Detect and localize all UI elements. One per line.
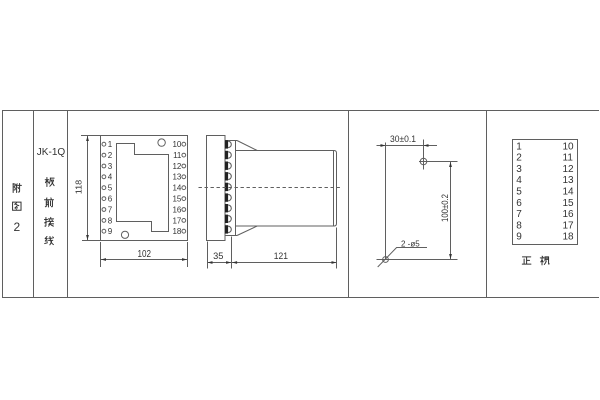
svg-text:18: 18 [172, 227, 181, 236]
svg-text:10: 10 [172, 140, 181, 149]
svg-text:18: 18 [563, 232, 575, 243]
svg-text:5: 5 [108, 184, 113, 193]
svg-text:15: 15 [172, 195, 181, 204]
svg-text:8: 8 [516, 220, 522, 231]
svg-text:121: 121 [274, 251, 288, 262]
svg-text:9: 9 [108, 227, 113, 236]
svg-text:8: 8 [108, 216, 113, 225]
svg-text:5: 5 [516, 187, 522, 198]
svg-text:1: 1 [108, 140, 113, 149]
svg-text:11: 11 [173, 151, 182, 160]
svg-text:4: 4 [516, 175, 522, 186]
svg-text:102: 102 [137, 249, 151, 260]
svg-text:6: 6 [516, 198, 522, 209]
svg-text:13: 13 [563, 175, 575, 186]
svg-text:JK-1Q: JK-1Q [37, 147, 66, 158]
svg-text:30±0.1: 30±0.1 [390, 134, 416, 145]
svg-text:2: 2 [108, 151, 113, 160]
svg-text:13: 13 [172, 173, 181, 182]
svg-text:7: 7 [516, 209, 522, 220]
svg-text:16: 16 [563, 209, 575, 220]
svg-text:12: 12 [563, 164, 575, 175]
svg-text:14: 14 [172, 184, 181, 193]
svg-text:11: 11 [563, 153, 574, 164]
svg-text:12: 12 [172, 162, 181, 171]
svg-text:4: 4 [108, 173, 113, 182]
svg-text:3: 3 [516, 164, 522, 175]
svg-text:7: 7 [108, 205, 113, 214]
svg-text:16: 16 [172, 205, 181, 214]
svg-text:6: 6 [108, 195, 113, 204]
svg-text:2: 2 [516, 153, 522, 164]
svg-text:1: 1 [516, 141, 522, 152]
svg-text:9: 9 [516, 232, 522, 243]
svg-text:2: 2 [13, 220, 20, 234]
svg-text:15: 15 [563, 198, 575, 209]
svg-text:10: 10 [563, 141, 575, 152]
svg-text:2 -ø5: 2 -ø5 [401, 238, 420, 248]
svg-text:3: 3 [108, 162, 113, 171]
svg-text:17: 17 [563, 220, 575, 231]
svg-text:100±0.2: 100±0.2 [440, 194, 450, 222]
svg-text:14: 14 [563, 187, 575, 198]
svg-text:35: 35 [213, 251, 223, 262]
svg-text:118: 118 [73, 179, 83, 194]
svg-text:17: 17 [172, 216, 181, 225]
